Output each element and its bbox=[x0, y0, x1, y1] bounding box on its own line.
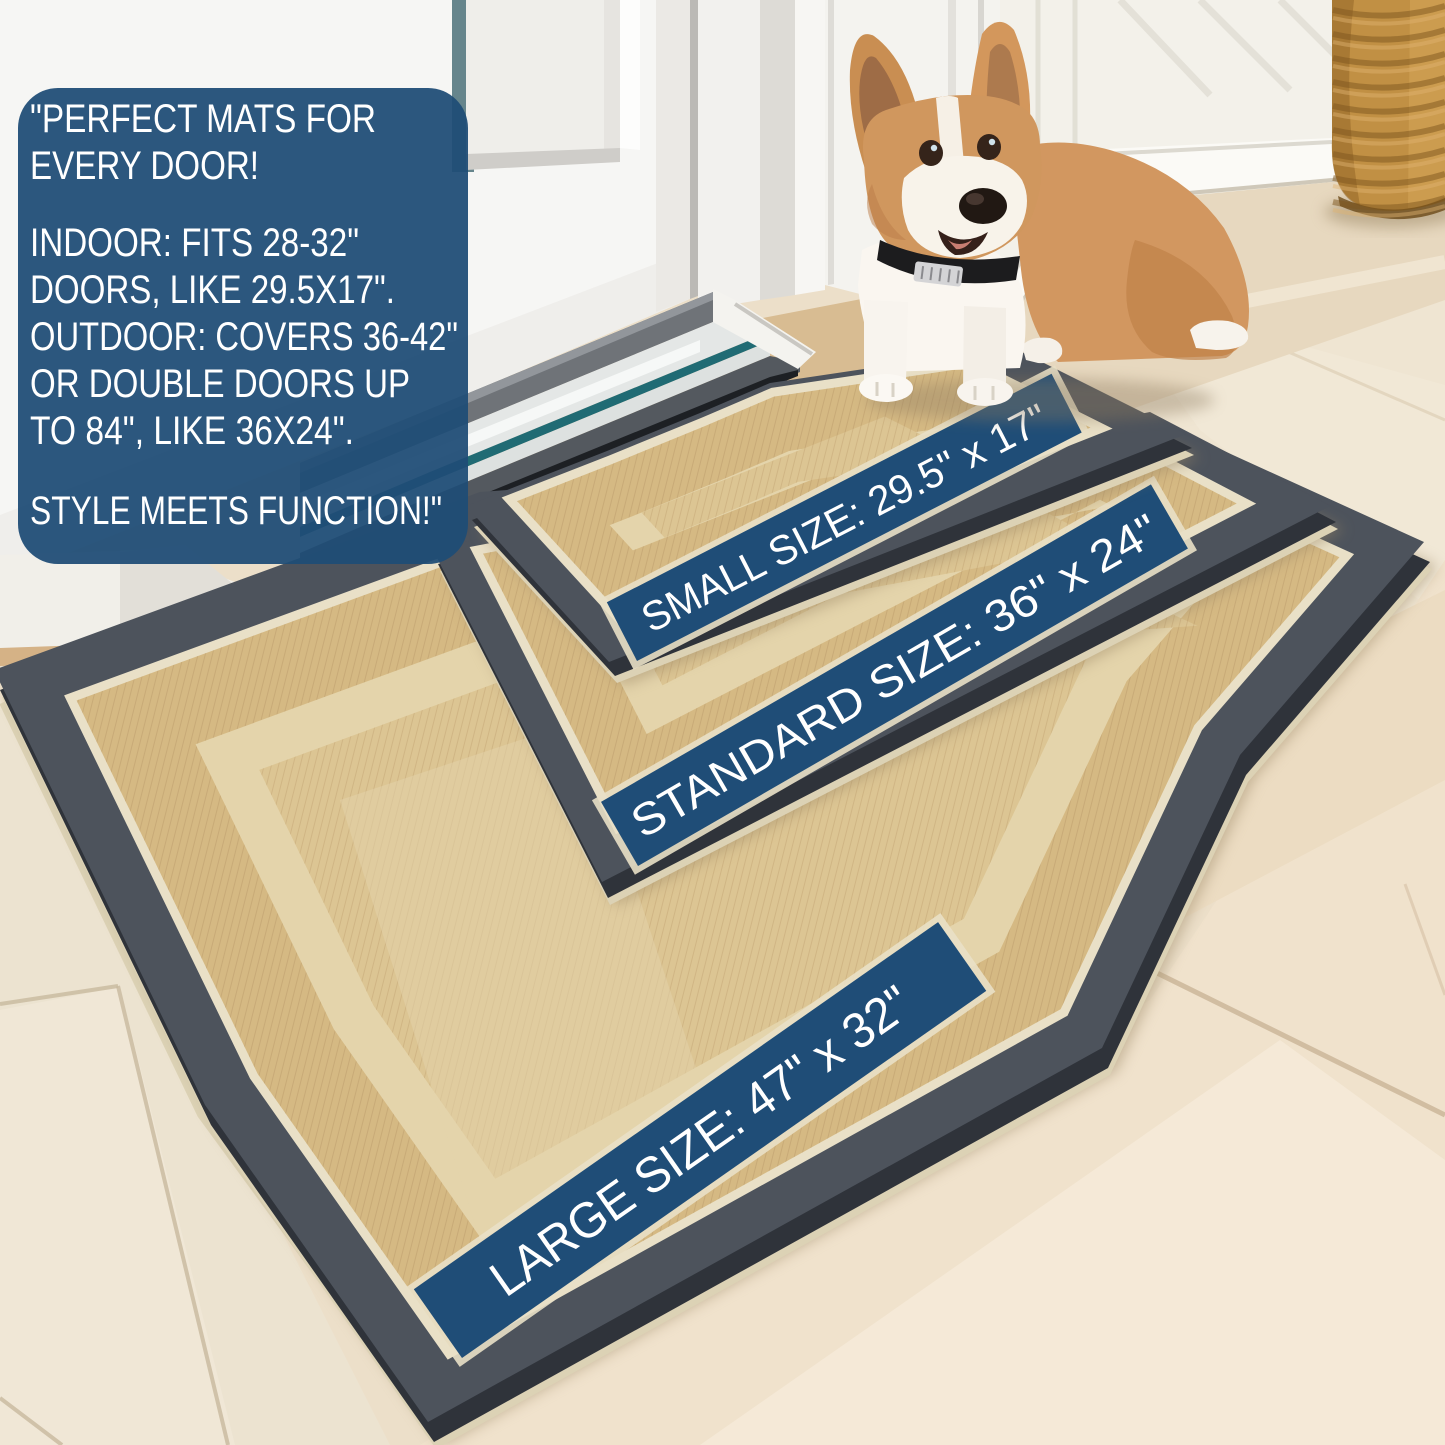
svg-text:STYLE MEETS FUNCTION!": STYLE MEETS FUNCTION!" bbox=[30, 489, 442, 533]
svg-text:DOORS, LIKE 29.5X17".: DOORS, LIKE 29.5X17". bbox=[30, 268, 395, 312]
svg-text:OR DOUBLE DOORS UP: OR DOUBLE DOORS UP bbox=[30, 362, 410, 406]
svg-text:INDOOR: FITS 28-32": INDOOR: FITS 28-32" bbox=[30, 221, 359, 265]
svg-text:OUTDOOR: COVERS 36-42": OUTDOOR: COVERS 36-42" bbox=[30, 315, 458, 359]
svg-text:"PERFECT MATS FOR: "PERFECT MATS FOR bbox=[30, 97, 376, 141]
svg-text:TO 84", LIKE 36X24".: TO 84", LIKE 36X24". bbox=[30, 409, 354, 453]
svg-text:EVERY DOOR!: EVERY DOOR! bbox=[30, 144, 259, 188]
